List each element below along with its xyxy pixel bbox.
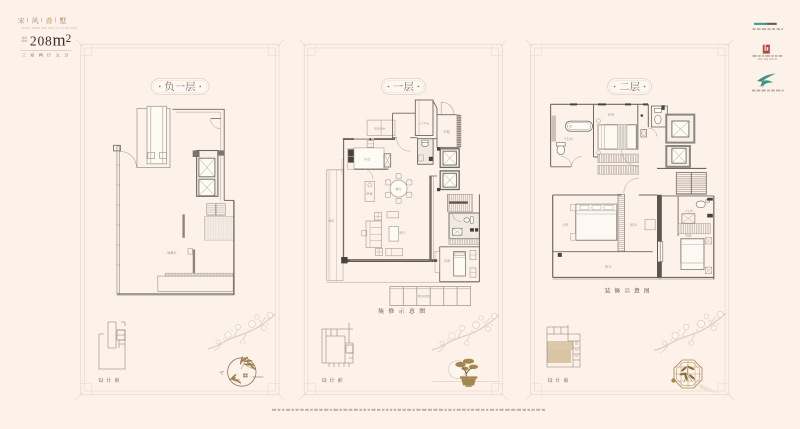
svg-text:208m2: 208m2: [30, 30, 72, 49]
svg-text:SONG FENG DIE SHU VILLA PALACE: SONG FENG DIE SHU VILLA PALACE: [22, 26, 78, 30]
